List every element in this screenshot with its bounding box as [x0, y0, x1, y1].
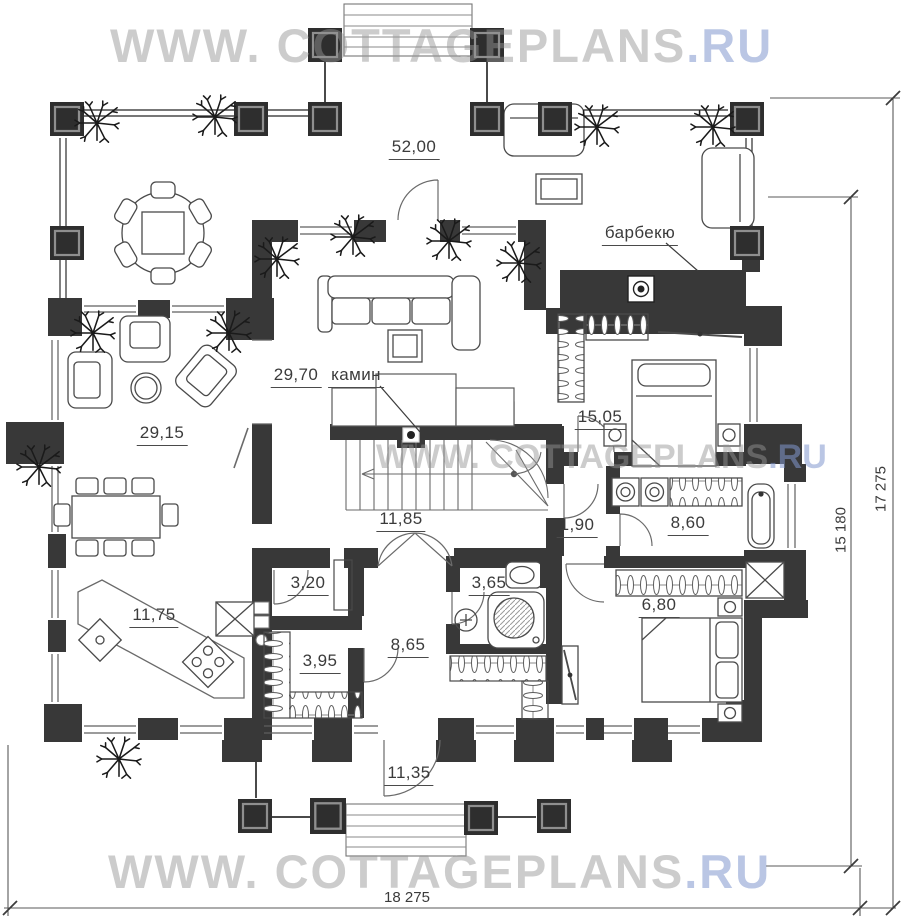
area-label-bedroom-1: 15,05: [575, 408, 626, 430]
dimension-side-outer: 17 275: [874, 466, 889, 512]
area-label-porch: 11,35: [384, 764, 433, 786]
kitchen-fridge: [216, 602, 254, 636]
terrace-dining-set: [113, 182, 213, 284]
barbecue-label: барбекю: [602, 224, 678, 246]
mirror: [562, 646, 578, 704]
area-label-bedroom-2: 6,80: [639, 596, 680, 618]
watermark-text: WWW. COTTAGEPLANS: [110, 19, 686, 72]
kitchen-dining-furniture: [54, 478, 254, 698]
barbecue-counter: [560, 270, 746, 308]
dimension-side-inner: 15 180: [834, 507, 849, 553]
kitchen-sink: [79, 619, 121, 661]
area-label-entry-hall: 8,65: [388, 636, 429, 658]
floor-plan: WWW. COTTAGEPLANS.RU WWW. COTTAGEPLANS.R…: [0, 0, 904, 922]
fireplace-label: камин: [328, 366, 384, 388]
watermark-middle: WWW. COTTAGEPLANS.RU: [376, 440, 827, 474]
area-label-bathroom-1: 8,60: [668, 514, 709, 536]
watermark-top: WWW. COTTAGEPLANS.RU: [110, 22, 773, 69]
watermark-domain-suffix: .RU: [686, 19, 773, 72]
area-label-corridor: 1,90: [557, 516, 598, 538]
watermark-bottom: WWW. COTTAGEPLANS.RU: [108, 848, 771, 895]
area-label-sitting-room: 29,15: [137, 424, 188, 446]
living-room-sofa: [318, 276, 480, 362]
closet-niche: [746, 562, 784, 598]
area-label-terrace: 52,00: [389, 138, 440, 160]
watermark-domain-suffix: .RU: [768, 438, 827, 476]
area-label-hall: 11,85: [376, 510, 425, 532]
watermark-domain-suffix: .RU: [684, 845, 771, 898]
area-label-bathroom-2: 3,65: [469, 574, 510, 596]
dimension-bottom: 18 275: [384, 890, 430, 905]
area-label-kitchen-dining: 11,75: [129, 606, 178, 628]
watermark-text: WWW. COTTAGEPLANS: [376, 438, 768, 476]
kitchen-stove: [183, 637, 234, 688]
area-label-pantry: 3,20: [288, 574, 329, 596]
area-label-living-room: 29,70: [271, 366, 322, 388]
area-label-wardrobe-room: 3,95: [300, 652, 341, 674]
